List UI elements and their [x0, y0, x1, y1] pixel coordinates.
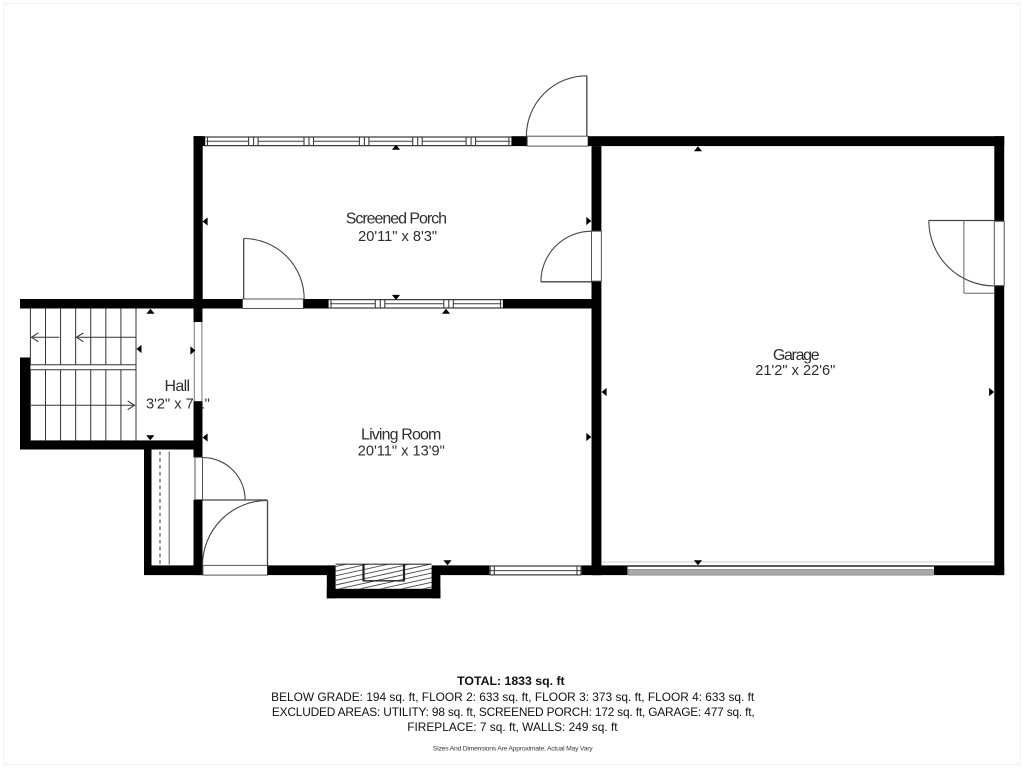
- svg-text:Hall: Hall: [164, 378, 189, 395]
- svg-text:TOTAL: 1833 sq. ft: TOTAL: 1833 sq. ft: [457, 674, 565, 688]
- svg-text:20'11" x 13'9": 20'11" x 13'9": [358, 443, 445, 459]
- svg-text:20'11" x 8'3": 20'11" x 8'3": [358, 229, 437, 245]
- svg-text:Garage: Garage: [773, 347, 820, 364]
- svg-text:21'2" x 22'6": 21'2" x 22'6": [755, 363, 835, 379]
- svg-text:Sizes And Dimensions Are Appro: Sizes And Dimensions Are Approximate, Ac…: [433, 745, 593, 752]
- svg-text:Living Room: Living Room: [361, 426, 441, 443]
- svg-text:BELOW GRADE: 194 sq. ft, FLOOR: BELOW GRADE: 194 sq. ft, FLOOR 2: 633 sq…: [271, 690, 755, 704]
- svg-text:EXCLUDED AREAS: UTILITY: 98 sq: EXCLUDED AREAS: UTILITY: 98 sq. ft, SCRE…: [272, 705, 755, 719]
- svg-text:FIREPLACE: 7 sq. ft, WALLS: 24: FIREPLACE: 7 sq. ft, WALLS: 249 sq. ft: [407, 720, 618, 734]
- svg-text:Screened Porch: Screened Porch: [346, 211, 446, 228]
